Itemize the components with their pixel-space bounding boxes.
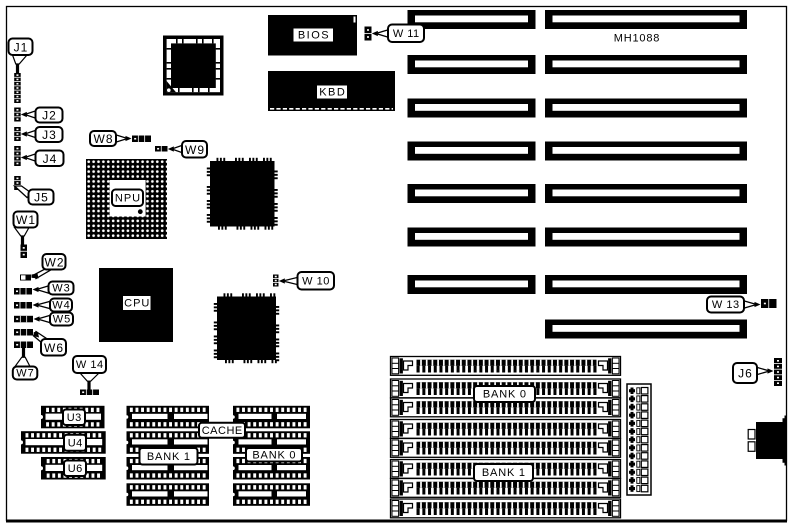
svg-text:W2: W2 (45, 255, 65, 269)
svg-text:CPU: CPU (124, 298, 150, 310)
svg-text:KBD: KBD (319, 87, 346, 99)
svg-text:BANK 1: BANK 1 (482, 467, 526, 479)
svg-text:W 14: W 14 (76, 359, 104, 371)
svg-text:W5: W5 (53, 314, 72, 326)
svg-text:BIOS: BIOS (298, 30, 330, 42)
svg-text:W8: W8 (94, 132, 114, 146)
svg-text:CACHE: CACHE (202, 425, 243, 437)
svg-text:J3: J3 (42, 128, 57, 142)
svg-text:W 10: W 10 (302, 275, 330, 287)
svg-text:J5: J5 (34, 191, 49, 205)
svg-text:MH1088: MH1088 (614, 33, 660, 45)
svg-text:W7: W7 (16, 368, 35, 380)
svg-text:U3: U3 (67, 412, 82, 424)
svg-text:W4: W4 (52, 300, 71, 312)
svg-text:U4: U4 (68, 437, 83, 449)
svg-text:J4: J4 (43, 152, 58, 166)
svg-text:W3: W3 (52, 283, 71, 295)
svg-text:W 11: W 11 (393, 28, 420, 40)
svg-text:W1: W1 (16, 213, 36, 227)
svg-text:J2: J2 (42, 109, 57, 123)
svg-text:J6: J6 (738, 367, 753, 381)
svg-text:W9: W9 (185, 143, 205, 157)
svg-text:W 13: W 13 (712, 299, 740, 311)
svg-text:BANK 0: BANK 0 (483, 389, 527, 401)
svg-text:W6: W6 (44, 341, 64, 355)
svg-text:BANK 0: BANK 0 (252, 449, 296, 461)
svg-text:U6: U6 (68, 463, 83, 475)
svg-text:NPU: NPU (115, 192, 141, 204)
svg-text:J1: J1 (14, 40, 29, 54)
svg-text:BANK 1: BANK 1 (147, 451, 191, 463)
